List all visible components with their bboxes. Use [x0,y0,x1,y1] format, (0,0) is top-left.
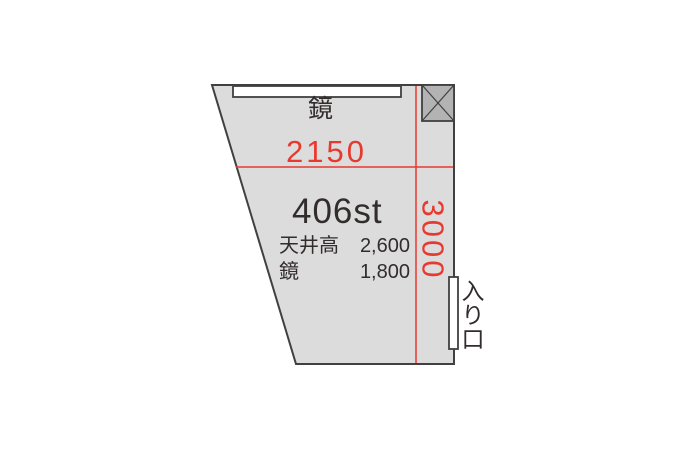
room-number-label: 406st [292,194,383,229]
floorplan-drawing [0,0,700,465]
mirror-height-value: 1,800 [360,262,410,282]
ceiling-height-row: 天井高 2,600 [279,236,410,256]
floorplan-canvas: 鏡 2150 406st 天井高 2,600 鏡 1,800 3000 入り口 [0,0,700,465]
mirror-height-label: 鏡 [279,262,299,282]
width-dimension-value: 2150 [286,136,367,167]
room-specs: 天井高 2,600 鏡 1,800 [279,236,410,288]
height-dimension-value: 3000 [418,200,449,281]
entrance-label: 入り口 [461,280,485,352]
ceiling-height-label: 天井高 [279,236,339,256]
pillar-hatch-box [422,85,454,121]
mirror-height-row: 鏡 1,800 [279,262,410,282]
mirror-label: 鏡 [308,97,333,122]
door-rect [449,277,458,349]
ceiling-height-value: 2,600 [360,236,410,256]
